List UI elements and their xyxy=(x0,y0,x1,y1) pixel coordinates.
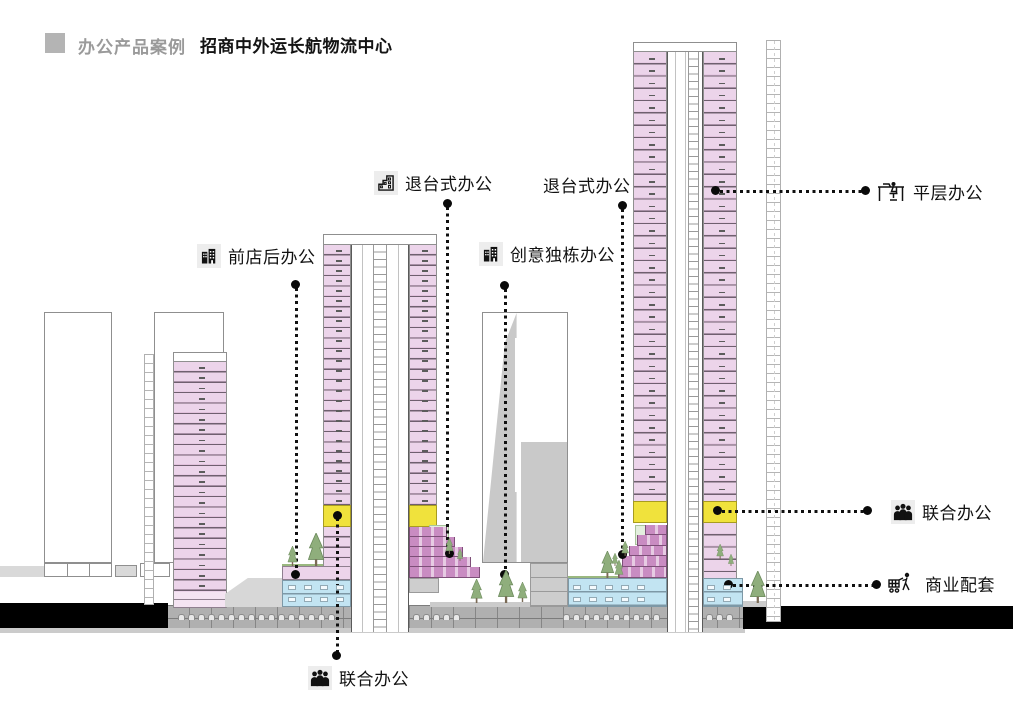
floor-mark xyxy=(199,533,205,535)
floor-mark xyxy=(199,461,205,463)
floor-mark xyxy=(199,471,205,473)
floor-mark xyxy=(422,250,428,252)
annotation-co-working-right: 联合办公 xyxy=(891,499,992,524)
right-tower-core xyxy=(667,52,703,632)
car-glyph xyxy=(178,614,185,620)
floor-mark xyxy=(719,95,725,97)
tree-icon xyxy=(307,533,325,566)
tree-icon xyxy=(749,571,767,603)
leader-dot xyxy=(500,281,509,290)
floor-mark xyxy=(719,83,725,85)
car-glyph xyxy=(218,614,225,620)
annotation-label: 退台式办公 xyxy=(543,172,631,197)
floor-mark xyxy=(719,169,725,171)
floor-mark xyxy=(649,243,655,245)
leader-line xyxy=(504,289,507,573)
car-glyph xyxy=(248,614,255,620)
podium-strip xyxy=(0,566,44,577)
floor-mark xyxy=(422,460,428,462)
center-building-outline xyxy=(482,312,568,563)
floor-mark xyxy=(649,341,655,343)
floor-mark xyxy=(719,218,725,220)
floor-mark xyxy=(422,310,428,312)
floor-mark xyxy=(649,83,655,85)
floor-mark xyxy=(199,367,205,369)
floor-level-scale-strip xyxy=(144,354,154,605)
car-glyph xyxy=(643,614,650,620)
floor-mark xyxy=(199,450,205,452)
car-glyph xyxy=(453,614,460,620)
atrium-floor xyxy=(409,578,439,593)
leader-line xyxy=(722,510,864,513)
floor-mark xyxy=(199,492,205,494)
floor-mark xyxy=(422,290,428,292)
terrace-step xyxy=(629,546,667,556)
floor-mark xyxy=(336,270,342,272)
car-glyph xyxy=(288,614,295,620)
floor-mark xyxy=(649,415,655,417)
floor-mark xyxy=(719,489,725,491)
terrace-step xyxy=(409,567,480,578)
floor-mark xyxy=(649,255,655,257)
floor-mark xyxy=(649,439,655,441)
floor-mark xyxy=(422,480,428,482)
car-glyph xyxy=(278,614,285,620)
car-glyph xyxy=(613,614,620,620)
car-glyph xyxy=(433,614,440,620)
floor-mark xyxy=(336,400,342,402)
annotation-label: 退台式办公 xyxy=(405,170,493,195)
leader-dot xyxy=(291,280,300,289)
coworking-band-left xyxy=(633,501,667,523)
podium-box xyxy=(115,565,137,577)
floor-mark xyxy=(719,267,725,269)
floor-mark xyxy=(649,193,655,195)
floor-mark xyxy=(719,255,725,257)
basement-ramp xyxy=(225,578,282,607)
center-building-lower-wall xyxy=(530,563,568,607)
floor-mark xyxy=(719,193,725,195)
floor-mark xyxy=(649,95,655,97)
leader-dot xyxy=(332,651,341,660)
floor-mark xyxy=(336,450,342,452)
furniture-mark xyxy=(320,585,328,590)
floor-mark xyxy=(649,144,655,146)
floor-mark xyxy=(649,464,655,466)
terrace-step xyxy=(409,547,463,557)
podium-box xyxy=(44,563,112,577)
floor-mark xyxy=(199,544,205,546)
annotation-front-shop-back-office: 前店后办公 xyxy=(197,243,316,268)
floor-mark xyxy=(649,58,655,60)
car-glyph xyxy=(653,614,660,620)
floor-mark xyxy=(649,452,655,454)
furniture-mark xyxy=(304,585,312,590)
floor-mark xyxy=(649,489,655,491)
floor-mark xyxy=(199,481,205,483)
shopping-cart-person-icon xyxy=(886,570,918,596)
floor-mark xyxy=(649,292,655,294)
floor-mark xyxy=(649,132,655,134)
tower-a-parapet xyxy=(173,352,227,362)
leader-dot xyxy=(618,201,627,210)
floor-mark xyxy=(719,402,725,404)
floor-mark xyxy=(649,230,655,232)
floor-mark xyxy=(719,390,725,392)
floor-mark xyxy=(336,390,342,392)
floor-mark xyxy=(336,260,342,262)
floor-mark xyxy=(649,267,655,269)
floor-mark xyxy=(649,329,655,331)
floor-mark xyxy=(719,230,725,232)
floor-mark xyxy=(422,390,428,392)
car-glyph xyxy=(563,614,570,620)
twin-building-icon xyxy=(197,244,221,268)
car-glyph xyxy=(268,614,275,620)
car-glyph xyxy=(258,614,265,620)
floor-mark xyxy=(336,440,342,442)
tree-icon xyxy=(287,546,298,566)
furniture-mark xyxy=(288,585,296,590)
background-tower-outline-1 xyxy=(44,312,112,563)
car-glyph xyxy=(593,614,600,620)
central-tower-core xyxy=(351,245,409,632)
floor-mark xyxy=(422,260,428,262)
floor-mark xyxy=(422,440,428,442)
floor-mark xyxy=(649,181,655,183)
floor-mark xyxy=(719,353,725,355)
car-glyph xyxy=(443,614,450,620)
floor-mark xyxy=(719,304,725,306)
leader-dot xyxy=(713,506,722,515)
floor-mark xyxy=(199,409,205,411)
floor-mark xyxy=(649,70,655,72)
floor-mark xyxy=(422,320,428,322)
floor-mark xyxy=(336,480,342,482)
central-tower-floors-right xyxy=(409,245,437,505)
floor-mark xyxy=(336,290,342,292)
floor-mark xyxy=(719,427,725,429)
floor-mark xyxy=(422,450,428,452)
commercial-podium-3 xyxy=(703,578,743,607)
floor-mark xyxy=(422,410,428,412)
leader-line xyxy=(621,209,624,553)
floor-mark xyxy=(719,341,725,343)
people-group-icon xyxy=(308,666,332,690)
floor-mark xyxy=(422,420,428,422)
annotation-terraced-office-2: 退台式办公 xyxy=(543,172,631,197)
architectural-section-drawing: 办公产品案例 招商中外运长航物流中心 xyxy=(0,0,1024,724)
furniture-mark xyxy=(707,597,715,602)
floor-mark xyxy=(199,440,205,442)
annotation-label: 联合办公 xyxy=(339,665,409,690)
floor-mark xyxy=(422,470,428,472)
furniture-mark xyxy=(336,597,344,602)
annotation-flat-floor-office: 平层办公 xyxy=(876,178,983,204)
floor-mark xyxy=(649,366,655,368)
car-glyph xyxy=(633,614,640,620)
floor-mark xyxy=(336,360,342,362)
people-group-icon xyxy=(891,500,915,524)
furniture-mark xyxy=(589,597,597,602)
floor-mark xyxy=(719,464,725,466)
leader-line xyxy=(720,190,862,193)
legend-swatch xyxy=(45,33,65,53)
annotation-label: 前店后办公 xyxy=(228,243,316,268)
page-title: 招商中外运长航物流中心 xyxy=(200,32,393,57)
floor-mark xyxy=(649,156,655,158)
floor-mark xyxy=(719,107,725,109)
floor-mark xyxy=(719,120,725,122)
floor-mark xyxy=(422,380,428,382)
case-label: 办公产品案例 xyxy=(78,33,186,58)
floor-mark xyxy=(422,280,428,282)
annotation-creative-detached-office: 创意独栋办公 xyxy=(479,241,615,266)
right-tower-parapet xyxy=(633,42,737,52)
floor-mark xyxy=(649,427,655,429)
car-glyph xyxy=(298,614,305,620)
desk-chair-icon xyxy=(876,178,906,204)
floor-mark xyxy=(199,502,205,504)
car-glyph xyxy=(423,614,430,620)
floor-mark xyxy=(719,316,725,318)
annotation-label: 创意独栋办公 xyxy=(510,241,615,266)
floor-mark xyxy=(719,144,725,146)
floor-mark xyxy=(719,366,725,368)
furniture-mark xyxy=(707,585,715,590)
floor-mark xyxy=(649,304,655,306)
car-glyph xyxy=(716,614,723,620)
annotation-terraced-office-1: 退台式办公 xyxy=(374,170,493,195)
floor-mark xyxy=(336,500,342,502)
furniture-mark xyxy=(573,585,581,590)
floor-mark xyxy=(199,377,205,379)
floor-mark xyxy=(719,452,725,454)
tower-a-lower-floors xyxy=(173,592,227,608)
floor-mark xyxy=(199,585,205,587)
annotation-label: 商业配套 xyxy=(925,571,995,596)
furniture-mark xyxy=(637,585,645,590)
leader-dot xyxy=(333,511,342,520)
stepped-building-icon xyxy=(374,171,398,195)
tree-icon xyxy=(716,544,724,559)
floor-mark xyxy=(649,120,655,122)
terrace-step xyxy=(637,535,667,546)
floor-mark xyxy=(422,340,428,342)
leader-line xyxy=(446,207,449,552)
car-glyph xyxy=(208,614,215,620)
floor-mark xyxy=(336,410,342,412)
floor-mark xyxy=(719,292,725,294)
floor-mark xyxy=(336,280,342,282)
floor-mark xyxy=(199,575,205,577)
floor-mark xyxy=(422,430,428,432)
car-glyph xyxy=(198,614,205,620)
floor-mark xyxy=(422,500,428,502)
floor-mark xyxy=(199,419,205,421)
floor-mark xyxy=(199,554,205,556)
floor-mark xyxy=(649,107,655,109)
furniture-mark xyxy=(621,597,629,602)
tree-icon xyxy=(470,579,483,603)
car-glyph xyxy=(623,614,630,620)
car-glyph xyxy=(188,614,195,620)
floor-mark xyxy=(422,350,428,352)
annotation-co-working-bottom: 联合办公 xyxy=(308,665,409,690)
floor-mark xyxy=(336,300,342,302)
furniture-mark xyxy=(723,585,731,590)
floor-mark xyxy=(199,523,205,525)
floor-mark xyxy=(336,250,342,252)
leader-dot xyxy=(443,199,452,208)
floor-mark xyxy=(719,378,725,380)
floor-mark xyxy=(649,316,655,318)
furniture-mark xyxy=(320,597,328,602)
floor-mark xyxy=(422,300,428,302)
floor-mark xyxy=(336,460,342,462)
floor-mark xyxy=(649,169,655,171)
furniture-mark xyxy=(605,585,613,590)
ground-bar-right xyxy=(743,606,1013,629)
floor-mark xyxy=(719,181,725,183)
annotation-label: 联合办公 xyxy=(922,499,992,524)
floor-mark xyxy=(422,400,428,402)
leader-line xyxy=(295,288,298,573)
floor-mark xyxy=(336,470,342,472)
leader-dot xyxy=(291,570,300,579)
commercial-podium-2 xyxy=(568,578,667,607)
furniture-mark xyxy=(637,597,645,602)
annotation-label: 平层办公 xyxy=(913,179,983,204)
floor-mark xyxy=(719,58,725,60)
coworking-band-right xyxy=(409,505,437,527)
floor-mark xyxy=(719,415,725,417)
tree-icon xyxy=(621,541,629,556)
terrace-step xyxy=(618,567,667,578)
tree-icon xyxy=(517,582,528,602)
floor-mark xyxy=(336,340,342,342)
floor-mark xyxy=(199,398,205,400)
leader-dot xyxy=(872,580,881,589)
terrace-step xyxy=(409,527,447,537)
central-tower-parapet xyxy=(323,234,437,245)
floor-mark xyxy=(649,218,655,220)
floor-mark xyxy=(719,156,725,158)
car-glyph xyxy=(413,614,420,620)
floor-mark xyxy=(649,353,655,355)
floor-mark xyxy=(422,490,428,492)
floor-mark xyxy=(649,390,655,392)
floor-mark xyxy=(649,279,655,281)
floor-mark xyxy=(719,206,725,208)
car-glyph xyxy=(726,614,733,620)
floor-mark xyxy=(719,243,725,245)
floor-mark xyxy=(336,350,342,352)
car-glyph xyxy=(573,614,580,620)
car-glyph xyxy=(308,614,315,620)
floor-mark xyxy=(199,513,205,515)
tree-icon xyxy=(727,554,735,566)
central-tower-floors-left xyxy=(323,245,351,505)
car-glyph xyxy=(318,614,325,620)
car-glyph xyxy=(583,614,590,620)
floor-mark xyxy=(719,132,725,134)
tree-icon xyxy=(611,553,619,566)
car-glyph xyxy=(228,614,235,620)
terrace-step xyxy=(622,556,667,567)
floor-mark xyxy=(336,420,342,422)
floor-mark xyxy=(649,476,655,478)
tree-icon xyxy=(497,570,515,603)
floor-mark xyxy=(719,329,725,331)
floor-mark xyxy=(719,70,725,72)
floor-mark xyxy=(422,330,428,332)
tree-icon xyxy=(456,549,464,561)
floor-mark xyxy=(199,388,205,390)
car-glyph xyxy=(603,614,610,620)
floor-mark xyxy=(719,476,725,478)
furniture-mark xyxy=(621,585,629,590)
furniture-mark xyxy=(573,597,581,602)
leader-dot xyxy=(863,506,872,515)
furniture-mark xyxy=(605,597,613,602)
furniture-mark xyxy=(723,597,731,602)
ground-bar-left xyxy=(0,603,168,628)
car-glyph xyxy=(706,614,713,620)
terrace-step xyxy=(645,525,667,535)
floor-mark xyxy=(422,270,428,272)
tree-icon xyxy=(445,538,454,554)
car-glyph xyxy=(238,614,245,620)
floor-mark xyxy=(649,206,655,208)
floor-level-scale-strip xyxy=(766,40,781,622)
floor-mark xyxy=(336,380,342,382)
furniture-mark xyxy=(288,597,296,602)
furniture-mark xyxy=(304,597,312,602)
leader-dot xyxy=(861,186,870,195)
car-glyph xyxy=(328,614,335,620)
floor-mark xyxy=(336,430,342,432)
floor-mark xyxy=(719,439,725,441)
furniture-mark xyxy=(336,585,344,590)
tower-a-office-floors xyxy=(173,362,227,592)
twin-building-icon xyxy=(479,242,503,266)
floor-mark xyxy=(199,429,205,431)
floor-mark xyxy=(336,310,342,312)
floor-mark xyxy=(719,279,725,281)
floor-mark xyxy=(336,330,342,332)
floor-mark xyxy=(336,320,342,322)
annotation-commercial-support: 商业配套 xyxy=(886,570,995,596)
floor-mark xyxy=(336,370,342,372)
furniture-mark xyxy=(589,585,597,590)
floor-mark xyxy=(649,378,655,380)
floor-mark xyxy=(422,360,428,362)
floor-mark xyxy=(422,370,428,372)
floor-mark xyxy=(199,565,205,567)
floor-mark xyxy=(336,490,342,492)
floor-mark xyxy=(649,402,655,404)
